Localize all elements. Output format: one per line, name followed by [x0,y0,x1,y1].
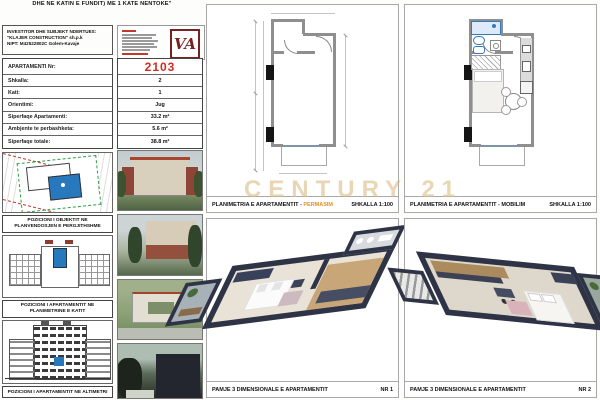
stamp-line [122,37,152,39]
panel-label-permasim: PLANIMETRIA E APARTAMENTIT - PERMASIM SH… [207,196,398,212]
caption-elevation: POZICIONI I APARTAMENTIT NE ALTIMETRI [2,386,113,398]
photo-building [132,159,188,196]
wall-segment [495,51,513,54]
panel-label-3d-1: PAMJE 3 DIMENSIONALE E APARTAMENTIT NR 1 [207,381,398,397]
dimension-line [279,173,327,174]
panel-plan-permasim: PLANIMETRIA E APARTAMENTIT - PERMASIM SH… [206,4,399,213]
kitchen-sink [522,45,531,53]
investor-nipt: NIPT: M42522802C Golem-Kavaje [7,41,108,47]
plan-sheet: STRUKTURA AKOMODUESE 3 KATE (ME ÇATI NE … [0,0,600,400]
wall-segment [297,51,315,54]
closet [232,268,273,283]
dimension-line [271,13,335,14]
caption-storey-plan: POZICIONI I APARTAMENTIT NE PLANIMETRINE… [2,300,113,318]
panel-3d-view-2: PAMJE 3 DIMENSIONALE E APARTAMENTIT NR 2 [404,218,597,398]
bath-fixture [355,238,364,245]
table-value: 33.2 m² [118,112,202,124]
wing-facade-right [85,339,111,380]
scale-label: SHKALLA 1:100 [549,202,591,208]
washing-machine-door [493,43,499,49]
photo-tree [188,225,202,267]
panel-title: PLANIMETRIA E APARTAMENTIT - MOBILIM [410,202,525,208]
photo-courtyard [148,302,174,314]
plant [186,288,200,298]
courtyard-dot [61,183,65,187]
column-block [266,127,274,142]
photo-path [126,390,154,398]
bench [178,307,203,317]
render-photo-evening [117,343,203,399]
toilet [473,36,485,45]
chair [517,97,527,107]
table-label: Kati: [3,87,112,99]
iso-room-1 [202,245,396,330]
balcony-outline [281,147,327,166]
table-label: Orientimi: [3,99,112,111]
storey-plan-figure [2,235,113,298]
architect-logo: VA [170,29,200,59]
iso-room-2 [416,251,600,330]
panel-title-word: MOBILIM [501,202,525,208]
pillow [474,71,502,82]
stamp-line [122,30,136,32]
building-footprint-highlight [48,173,82,200]
photo-cornice [130,157,190,160]
roof-structure [41,321,49,326]
road-lines [3,153,17,213]
apartment-elevation-highlight [54,357,64,366]
plant [588,282,600,291]
table-value: 5.6 m² [118,124,202,136]
view-number: NR 2 [578,387,591,393]
wing-facade-left [9,339,35,380]
balcony-outline [479,147,525,166]
balcony-box [577,273,600,328]
table-value: Jug [118,99,202,111]
investor-box: INVESTITOR DHE SUBJEKT NDERTUES: "KLAJER… [2,25,113,55]
apartment-highlight [53,248,67,268]
view-number: NR 1 [380,387,393,393]
roof-mark [65,240,73,244]
stamp-line [122,49,150,51]
highlighted-word: PERMASIM [303,202,333,208]
render-photo-perspective [117,214,203,276]
bath-fixture [366,236,375,243]
bathroom-box [343,225,406,255]
roof-mark [45,240,53,244]
elevation-figure [2,320,113,384]
roof-structure [63,321,71,326]
dimension-tick [343,33,347,37]
table-value: 2 [118,75,202,87]
dimension-tick [253,19,257,23]
caption-site-plan: POZICIONI I OBJEKTIT NE PLANVENDOSJEN E … [2,215,113,233]
panel-title: PAMJE 3 DIMENSIONALE E APARTAMENTIT [212,387,328,393]
table-label: Siperfaqe totale: [3,136,112,148]
wall-segment [302,19,305,34]
panel-3d-view-1: PAMJE 3 DIMENSIONALE E APARTAMENTIT NR 1 [206,218,399,398]
sink [473,46,485,54]
dimension-line [345,35,346,147]
dimension-line [255,21,256,171]
apartment-number: 2103 [145,60,176,74]
table-label: Shkalla: [3,75,112,87]
island-desk [493,287,515,298]
dimension-tick [253,91,257,95]
panel-title: PAMJE 3 DIMENSIONALE E APARTAMENTIT [410,387,526,393]
table-label: APARTAMENTI Nr: [3,59,112,75]
wall-segment [271,19,305,22]
column-block [266,65,274,80]
panel-label-mobilim: PLANIMETRIA E APARTAMENTIT - MOBILIM SHK… [405,196,596,212]
table-label: Siperfaqe Apartamenti: [3,112,112,124]
photo-tree [194,171,203,197]
wing-left [9,254,41,286]
site-plan-figure [2,152,113,213]
door-arc [284,40,298,54]
photo-building-dark [156,354,200,399]
panel-label-3d-2: PAMJE 3 DIMENSIONALE E APARTAMENTIT NR 2 [405,381,596,397]
stamp-line [122,40,158,42]
dimension-tick [343,144,347,148]
panel-title: PLANIMETRIA E APARTAMENTIT - PERMASIM [212,202,333,208]
table-value: 1 [118,87,202,99]
scale-label: SHKALLA 1:100 [351,202,393,208]
wing-right [78,254,110,286]
chair [501,87,511,97]
wardrobe-hatch [471,55,501,70]
apartment-table-labels: APARTAMENTI Nr: Shkalla: Kati: Orientimi… [2,58,113,149]
photo-tree [117,171,126,197]
apartment-table-values: 2103 2 1 Jug 33.2 m² 5.6 m² 38.8 m² [117,58,203,149]
table-label: Ambjente te perbashketa: [3,124,112,136]
shower-head [492,24,496,28]
door-arc [316,36,332,52]
wall-segment [274,51,284,54]
ground-line [5,378,110,379]
architect-stamp: VA [117,25,205,60]
photo-road [118,328,203,340]
render-photo-front [117,150,203,211]
shower [471,21,501,35]
sheet-title: STRUKTURA AKOMODUESE 3 KATE (ME ÇATI NE … [2,0,202,8]
column-block [464,127,472,142]
tower-facade [33,325,87,380]
photo-tree [128,227,142,263]
dimension-tick [253,168,257,172]
wall-segment [333,33,336,147]
dimension-line [263,21,264,171]
stamp-line [122,53,148,55]
stamp-line [122,34,156,36]
stamp-line [122,46,157,48]
wardrobe [550,272,578,284]
stove [522,61,531,72]
bath-fixture [378,234,394,242]
fridge [520,81,533,94]
panel-plan-mobilim: PLANIMETRIA E APARTAMENTIT - MOBILIM SHK… [404,4,597,213]
chair [501,105,511,115]
stamp-line [122,43,154,45]
table-value: 38.8 m² [118,136,202,148]
